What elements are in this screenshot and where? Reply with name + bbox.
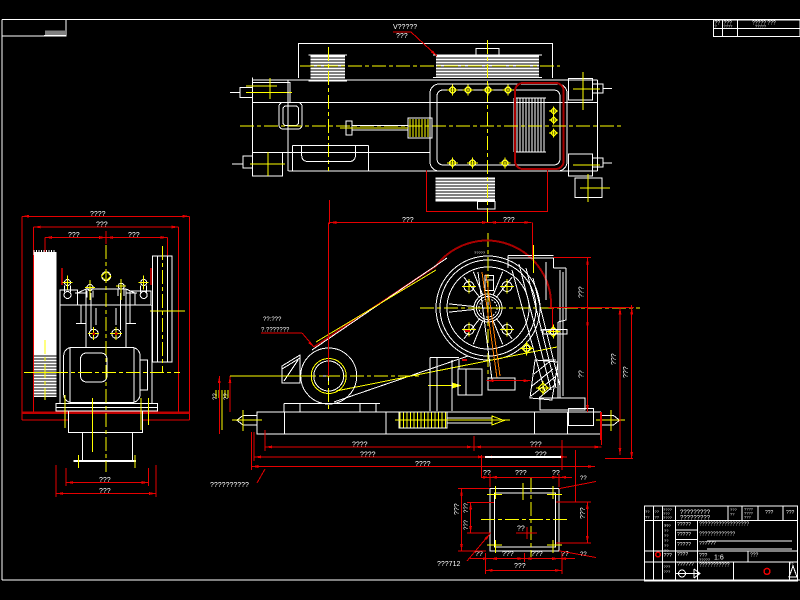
svg-text:???: ???: [664, 553, 673, 559]
svg-text:???: ???: [750, 553, 759, 559]
svg-text:??????????????????: ??????????????????: [699, 522, 749, 528]
svg-text:?????: ?????: [755, 24, 767, 29]
svg-text:???: ???: [611, 353, 618, 365]
svg-text:?????: ?????: [474, 250, 486, 255]
svg-text:??????: ??????: [677, 562, 694, 568]
svg-text:????: ????: [677, 552, 688, 558]
svg-text:????: ????: [663, 515, 673, 520]
svg-text:???: ???: [531, 551, 543, 558]
svg-text:???712: ???712: [437, 561, 460, 568]
svg-text:?????: ?????: [677, 522, 691, 528]
svg-text:?????: ?????: [677, 542, 691, 548]
svg-text:???: ???: [402, 217, 414, 224]
svg-text:????: ????: [415, 461, 431, 468]
svg-text:??: ??: [789, 561, 794, 566]
svg-text:???: ???: [396, 33, 408, 40]
svg-text:????: ????: [90, 211, 106, 218]
svg-text:????: ????: [724, 24, 734, 29]
svg-text:??:???: ??:???: [263, 317, 282, 323]
svg-text:???: ???: [515, 470, 527, 477]
svg-text:???: ???: [464, 519, 470, 530]
svg-text:???????????: ???????????: [699, 563, 730, 569]
svg-text:??????????: ??????????: [210, 482, 249, 489]
svg-text:???: ???: [68, 232, 80, 239]
svg-text:???: ???: [454, 503, 461, 515]
svg-text:???: ???: [786, 510, 795, 516]
svg-text:?????: ?????: [699, 557, 711, 562]
svg-text:???: ???: [579, 286, 586, 298]
svg-text:??: ??: [475, 551, 483, 558]
svg-text:?????????????: ?????????????: [699, 532, 735, 538]
svg-text:???: ???: [664, 523, 671, 528]
svg-text:????: ????: [360, 452, 376, 459]
svg-text:???: ???: [99, 488, 111, 495]
svg-text:??: ??: [517, 526, 525, 533]
svg-text:V?????: V?????: [393, 24, 417, 31]
svg-text:??????: ??????: [699, 541, 716, 547]
svg-text:???: ???: [664, 569, 671, 574]
svg-text:????: ????: [352, 442, 368, 449]
svg-text:??: ??: [580, 476, 587, 482]
svg-text:??: ??: [579, 370, 586, 378]
svg-text:???: ???: [530, 442, 542, 449]
svg-text:???: ???: [514, 563, 526, 570]
svg-text:??: ??: [213, 393, 219, 400]
svg-text:???: ???: [464, 502, 470, 513]
svg-text:1:6: 1:6: [714, 555, 724, 562]
svg-text:??: ??: [655, 509, 660, 514]
svg-text:??: ??: [580, 552, 587, 558]
svg-text:??: ??: [655, 515, 660, 520]
svg-text:??: ??: [224, 393, 230, 400]
svg-text:???: ???: [128, 232, 140, 239]
svg-text:???: ???: [502, 551, 514, 558]
svg-text:???: ???: [765, 510, 774, 516]
svg-text:???: ???: [96, 222, 108, 229]
svg-text:???: ???: [623, 366, 630, 378]
svg-text:???: ???: [744, 515, 751, 520]
svg-text:???: ???: [580, 507, 587, 519]
svg-text:??: ??: [645, 509, 650, 514]
svg-text:???: ???: [99, 477, 111, 484]
svg-text:??: ??: [730, 512, 735, 517]
svg-text:???: ???: [503, 217, 515, 224]
svg-text:?????: ?????: [677, 532, 691, 538]
svg-text:??: ??: [645, 515, 650, 520]
